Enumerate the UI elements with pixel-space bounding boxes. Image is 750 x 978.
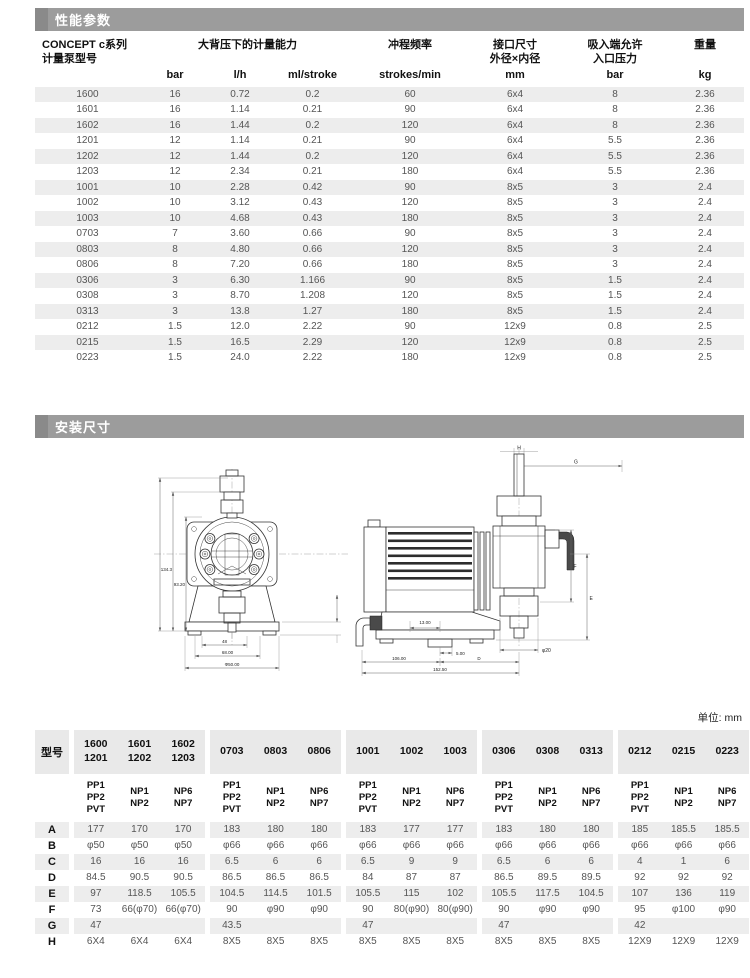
dims-value-cell: φ100 bbox=[662, 902, 706, 918]
perf-table-cell: 1.166 bbox=[270, 273, 355, 289]
perf-table-cell: 0806 bbox=[35, 257, 140, 273]
dims-value-cell: 185.5 bbox=[705, 822, 749, 838]
dims-value-cell: 185.5 bbox=[662, 822, 706, 838]
dims-value-cell: 87 bbox=[433, 870, 477, 886]
perf-table-cell: 0306 bbox=[35, 273, 140, 289]
dims-value-cell: 9 bbox=[390, 854, 434, 870]
dims-value-cell: φ66 bbox=[433, 838, 477, 854]
side-dim-left-len: 106.00 bbox=[392, 656, 406, 661]
perf-table-cell: 180 bbox=[355, 211, 465, 227]
dims-value-cell: φ66 bbox=[210, 838, 254, 854]
perf-table-cell: 2.4 bbox=[665, 195, 745, 211]
dims-material-cell: NP6 NP7 bbox=[161, 786, 205, 810]
dims-value-cell: 47 bbox=[346, 918, 390, 934]
dims-value-cell: φ66 bbox=[482, 838, 526, 854]
dims-value-cell: 9 bbox=[433, 854, 477, 870]
perf-table-cell: 2.34 bbox=[210, 164, 270, 180]
perf-table-cell: 5.5 bbox=[565, 149, 665, 165]
dims-value-cell: 95 bbox=[618, 902, 662, 918]
perf-table-cell: 8.70 bbox=[210, 288, 270, 304]
dims-value-group: 47 bbox=[74, 918, 205, 934]
perf-table-row: 1001102.280.42908x532.4 bbox=[35, 180, 744, 196]
dims-value-cell: 117.5 bbox=[526, 886, 570, 902]
perf-table-cell: 0.72 bbox=[210, 87, 270, 103]
dims-value-cell: 177 bbox=[390, 822, 434, 838]
side-dim-right-len: D bbox=[477, 656, 481, 661]
dims-value-cell: 90 bbox=[346, 902, 390, 918]
perf-table-cell: 3.12 bbox=[210, 195, 270, 211]
perf-table-cell: 12x9 bbox=[465, 319, 565, 335]
dims-value-cell: 104.5 bbox=[210, 886, 254, 902]
perf-table-cell: 2.36 bbox=[665, 133, 745, 149]
dims-model-group: 1600 12011601 12021602 1203 bbox=[74, 730, 205, 774]
perf-table-cell: 6x4 bbox=[465, 164, 565, 180]
perf-table-cell: 1.5 bbox=[565, 304, 665, 320]
perf-unit-cell: kg bbox=[665, 68, 745, 85]
perf-table-cell: 0308 bbox=[35, 288, 140, 304]
perf-table-cell: 1.5 bbox=[140, 350, 210, 366]
dims-value-cell: 12X9 bbox=[662, 934, 706, 950]
side-dim-foot: 5.00 bbox=[456, 651, 465, 656]
perf-table-cell: 1201 bbox=[35, 133, 140, 149]
perf-table-cell: 120 bbox=[355, 242, 465, 258]
perf-table-cell: 1602 bbox=[35, 118, 140, 134]
bleed-elbow-tube bbox=[559, 532, 574, 570]
dims-material-cell: NP1 NP2 bbox=[662, 786, 706, 810]
dims-value-group: 95φ100φ90 bbox=[618, 902, 749, 918]
performance-section-title: 性能参数 bbox=[48, 10, 111, 29]
dims-value-cell: 90 bbox=[210, 902, 254, 918]
perf-table-cell: 2.29 bbox=[270, 335, 355, 351]
dims-value-cell: φ90 bbox=[297, 902, 341, 918]
perf-table-cell: 13.8 bbox=[210, 304, 270, 320]
perf-table-cell: 8x5 bbox=[465, 304, 565, 320]
perf-table-cell: 5.5 bbox=[565, 164, 665, 180]
perf-table-cell: 0223 bbox=[35, 350, 140, 366]
perf-table-header: CONCEPT c系列 计量泵型号 大背压下的计量能力 冲程频率 接口尺寸 外径… bbox=[35, 31, 744, 67]
dims-row-label: F bbox=[35, 902, 69, 918]
perf-table-cell: 4.68 bbox=[210, 211, 270, 227]
dims-row-label: B bbox=[35, 838, 69, 854]
dims-value-cell: φ66 bbox=[705, 838, 749, 854]
perf-table-cell: 120 bbox=[355, 118, 465, 134]
dims-material-cell: NP1 NP2 bbox=[526, 786, 570, 810]
perf-table-cell: 0.8 bbox=[565, 335, 665, 351]
dims-model-cell: 0308 bbox=[526, 745, 570, 759]
perf-table-cell: 1.5 bbox=[140, 319, 210, 335]
dims-value-cell: 6X4 bbox=[74, 934, 118, 950]
perf-table-cell: 0.21 bbox=[270, 164, 355, 180]
perf-table-cell: 10 bbox=[140, 180, 210, 196]
dims-value-cell: φ50 bbox=[74, 838, 118, 854]
perf-unit-cell: strokes/min bbox=[355, 68, 465, 85]
dims-value-cell: 12X9 bbox=[705, 934, 749, 950]
perf-table-cell: 2.5 bbox=[665, 350, 745, 366]
perf-table-cell: 3 bbox=[565, 242, 665, 258]
perf-table-cell: 2.22 bbox=[270, 350, 355, 366]
dims-value-group: 177170170 bbox=[74, 822, 205, 838]
dims-value-group: 84.590.590.5 bbox=[74, 870, 205, 886]
dims-material-group: PP1 PP2 PVTNP1 NP2NP6 NP7 bbox=[210, 774, 341, 822]
front-dim-width-small: 48 bbox=[222, 639, 228, 644]
dims-value-cell: φ50 bbox=[118, 838, 162, 854]
dims-value-group: 90φ90φ90 bbox=[210, 902, 341, 918]
dims-table-row: E97118.5105.5104.5114.5101.5105.51151021… bbox=[35, 886, 750, 902]
dimensions-table: 型号1600 12011601 12021602 120307030803080… bbox=[35, 730, 750, 950]
dims-model-cell: 0215 bbox=[662, 745, 706, 759]
dims-value-group: 8X58X58X5 bbox=[346, 934, 477, 950]
perf-units-row: barl/hml/strokestrokes/minmmbarkg bbox=[35, 68, 744, 85]
perf-table-cell: 1600 bbox=[35, 87, 140, 103]
dims-model-cell: 0806 bbox=[297, 745, 341, 759]
dims-value-cell: φ66 bbox=[254, 838, 298, 854]
perf-table-cell: 2.5 bbox=[665, 335, 745, 351]
perf-table-cell: 8 bbox=[565, 87, 665, 103]
dims-table-row: H6X46X46X48X58X58X58X58X58X58X58X58X512X… bbox=[35, 934, 750, 950]
dims-value-cell: 12X9 bbox=[618, 934, 662, 950]
dims-model-cell: 0313 bbox=[569, 745, 613, 759]
dims-material-group: PP1 PP2 PVTNP1 NP2NP6 NP7 bbox=[74, 774, 205, 822]
dims-value-cell: 6X4 bbox=[118, 934, 162, 950]
dims-model-cell: 1602 1203 bbox=[161, 738, 205, 765]
dims-model-cell: 0212 bbox=[618, 745, 662, 759]
dims-value-cell: φ90 bbox=[569, 902, 613, 918]
perf-table-cell: 1.14 bbox=[210, 133, 270, 149]
perf-table-cell: 6x4 bbox=[465, 118, 565, 134]
perf-table-cell: 0212 bbox=[35, 319, 140, 335]
perf-table-row: 030636.301.166908x51.52.4 bbox=[35, 273, 744, 289]
dims-value-cell: 6.5 bbox=[210, 854, 254, 870]
perf-table-cell: 16 bbox=[140, 118, 210, 134]
perf-table-row: 030838.701.2081208x51.52.4 bbox=[35, 288, 744, 304]
dims-value-group: φ66φ66φ66 bbox=[346, 838, 477, 854]
perf-table-cell: 1601 bbox=[35, 102, 140, 118]
perf-table-row: 1201121.140.21906x45.52.36 bbox=[35, 133, 744, 149]
dims-value-cell: 8X5 bbox=[210, 934, 254, 950]
dims-material-cell: NP1 NP2 bbox=[390, 786, 434, 810]
dims-value-cell: 8X5 bbox=[482, 934, 526, 950]
dims-value-cell: φ50 bbox=[161, 838, 205, 854]
dims-value-group: 107136119 bbox=[618, 886, 749, 902]
dims-value-cell: 170 bbox=[161, 822, 205, 838]
dims-value-group: 12X912X912X9 bbox=[618, 934, 749, 950]
perf-table-cell: 1202 bbox=[35, 149, 140, 165]
perf-table-row: 02151.516.52.2912012x90.82.5 bbox=[35, 335, 744, 351]
perf-unit-cell: ml/stroke bbox=[270, 68, 355, 85]
perf-table-cell: 0215 bbox=[35, 335, 140, 351]
perf-table-cell: 3 bbox=[565, 257, 665, 273]
front-dim-width-full: Φ50.00 bbox=[225, 662, 240, 667]
dims-value-cell: φ66 bbox=[569, 838, 613, 854]
installation-section-bar: 安装尺寸 bbox=[35, 415, 744, 438]
perf-unit-cell: mm bbox=[465, 68, 565, 85]
perf-table-row: 1203122.340.211806x45.52.36 bbox=[35, 164, 744, 180]
dims-value-group: 97118.5105.5 bbox=[74, 886, 205, 902]
dims-model-group: 100110021003 bbox=[346, 730, 477, 774]
perf-table-cell: 3 bbox=[565, 211, 665, 227]
perf-unit-cell bbox=[35, 68, 140, 85]
dims-value-group: 161616 bbox=[74, 854, 205, 870]
perf-table-cell: 2.4 bbox=[665, 242, 745, 258]
perf-table-row: 02121.512.02.229012x90.82.5 bbox=[35, 319, 744, 335]
perf-table-cell: 12x9 bbox=[465, 335, 565, 351]
front-dim-width-mid: 68.00 bbox=[222, 650, 234, 655]
dims-table-row: G4743.5474742 bbox=[35, 918, 750, 934]
dims-value-cell: 87 bbox=[390, 870, 434, 886]
perf-table-cell: 120 bbox=[355, 195, 465, 211]
dims-value-cell: 107 bbox=[618, 886, 662, 902]
dims-value-cell: 119 bbox=[705, 886, 749, 902]
dims-value-cell: 47 bbox=[74, 918, 118, 934]
dims-value-cell: φ66 bbox=[297, 838, 341, 854]
dims-table-row: C1616166.5666.5996.566416 bbox=[35, 854, 750, 870]
dims-model-cell: 0223 bbox=[705, 745, 749, 759]
side-dim-h: H bbox=[517, 445, 521, 451]
perf-table-cell: 0.43 bbox=[270, 211, 355, 227]
perf-table-cell: 10 bbox=[140, 211, 210, 227]
perf-table-cell: 180 bbox=[355, 304, 465, 320]
dims-value-cell: 92 bbox=[705, 870, 749, 886]
dims-value-cell: 136 bbox=[662, 886, 706, 902]
perf-table-cell: 180 bbox=[355, 164, 465, 180]
dims-material-cell: NP6 NP7 bbox=[433, 786, 477, 810]
dims-value-group: φ66φ66φ66 bbox=[482, 838, 613, 854]
dims-value-cell: 86.5 bbox=[210, 870, 254, 886]
side-dim-total-len: 152.50 bbox=[433, 667, 447, 672]
dims-value-cell: 6 bbox=[705, 854, 749, 870]
dims-value-group: 105.5117.5104.5 bbox=[482, 886, 613, 902]
dims-value-cell: 84 bbox=[346, 870, 390, 886]
dims-model-cell: 1003 bbox=[433, 745, 477, 759]
dims-value-cell: 8X5 bbox=[569, 934, 613, 950]
dims-material-group: PP1 PP2 PVTNP1 NP2NP6 NP7 bbox=[346, 774, 477, 822]
dims-value-cell: 66(φ70) bbox=[118, 902, 162, 918]
perf-table-cell: 16 bbox=[140, 87, 210, 103]
dims-value-cell: 6.5 bbox=[346, 854, 390, 870]
perf-header-stroke-freq: 冲程频率 bbox=[355, 38, 465, 52]
perf-table-cell: 180 bbox=[355, 350, 465, 366]
dims-row-label: D bbox=[35, 870, 69, 886]
perf-table-cell: 7 bbox=[140, 226, 210, 242]
dims-value-cell: 66(φ70) bbox=[161, 902, 205, 918]
perf-table-cell: 2.4 bbox=[665, 257, 745, 273]
section-bar-chip bbox=[35, 8, 48, 31]
dims-value-cell: 97 bbox=[74, 886, 118, 902]
front-dim-height-inner: 93.20 bbox=[174, 582, 186, 587]
dims-row-label: C bbox=[35, 854, 69, 870]
dims-value-group: 9080(φ90)80(φ90) bbox=[346, 902, 477, 918]
perf-table-body: 1600160.720.2606x482.361601161.140.21906… bbox=[35, 87, 744, 366]
dims-value-cell: 6X4 bbox=[161, 934, 205, 950]
dims-value-cell: 118.5 bbox=[118, 886, 162, 902]
dims-value-cell: 4 bbox=[618, 854, 662, 870]
dims-value-cell: 180 bbox=[569, 822, 613, 838]
dims-value-group: 848787 bbox=[346, 870, 477, 886]
perf-table-cell: 1203 bbox=[35, 164, 140, 180]
perf-table-cell: 2.4 bbox=[665, 180, 745, 196]
perf-table-cell: 1.27 bbox=[270, 304, 355, 320]
perf-table-cell: 0.2 bbox=[270, 87, 355, 103]
dims-corner-empty bbox=[35, 774, 69, 822]
dims-material-cell: PP1 PP2 PVT bbox=[482, 780, 526, 816]
perf-table-cell: 2.4 bbox=[665, 211, 745, 227]
perf-table-cell: 0.42 bbox=[270, 180, 355, 196]
dims-value-group: 6X46X46X4 bbox=[74, 934, 205, 950]
dims-value-cell: 185 bbox=[618, 822, 662, 838]
dims-value-cell: 180 bbox=[526, 822, 570, 838]
perf-table-cell: 16 bbox=[140, 102, 210, 118]
dims-material-cell: PP1 PP2 PVT bbox=[210, 780, 254, 816]
perf-table-cell: 16.5 bbox=[210, 335, 270, 351]
dims-value-group: φ50φ50φ50 bbox=[74, 838, 205, 854]
side-dim-offset: 13.00 bbox=[419, 620, 431, 625]
dims-value-group: 6.599 bbox=[346, 854, 477, 870]
perf-table-cell: 3 bbox=[565, 195, 665, 211]
perf-table-cell: 6x4 bbox=[465, 87, 565, 103]
dims-model-cell: 0703 bbox=[210, 745, 254, 759]
perf-table-cell: 2.28 bbox=[210, 180, 270, 196]
perf-table-cell: 1.5 bbox=[140, 335, 210, 351]
dims-value-group: 185185.5185.5 bbox=[618, 822, 749, 838]
dims-value-group: 86.589.589.5 bbox=[482, 870, 613, 886]
performance-section-bar: 性能参数 bbox=[35, 8, 744, 31]
dims-value-cell: 90 bbox=[482, 902, 526, 918]
perf-unit-cell: bar bbox=[565, 68, 665, 85]
dims-value-group: 90φ90φ90 bbox=[482, 902, 613, 918]
perf-table-cell: 120 bbox=[355, 335, 465, 351]
dims-model-cell: 0306 bbox=[482, 745, 526, 759]
perf-table-row: 1202121.440.21206x45.52.36 bbox=[35, 149, 744, 165]
dims-value-group: 105.5115102 bbox=[346, 886, 477, 902]
dims-value-cell: 42 bbox=[618, 918, 662, 934]
perf-table-cell: 1.5 bbox=[565, 273, 665, 289]
perf-table-cell: 12.0 bbox=[210, 319, 270, 335]
installation-section-title: 安装尺寸 bbox=[48, 417, 111, 436]
perf-table-cell: 2.4 bbox=[665, 226, 745, 242]
perf-table-cell: 1.44 bbox=[210, 118, 270, 134]
dims-value-cell: 6 bbox=[526, 854, 570, 870]
perf-table-cell: 8 bbox=[565, 102, 665, 118]
dims-row-label: A bbox=[35, 822, 69, 838]
dims-value-cell: 73 bbox=[74, 902, 118, 918]
perf-table-cell: 3 bbox=[140, 304, 210, 320]
perf-table-cell: 8x5 bbox=[465, 288, 565, 304]
perf-table-cell: 8x5 bbox=[465, 180, 565, 196]
dims-material-cell: NP1 NP2 bbox=[254, 786, 298, 810]
dims-table-row: D84.590.590.586.586.586.584878786.589.58… bbox=[35, 870, 750, 886]
perf-table-cell: 10 bbox=[140, 195, 210, 211]
dims-value-cell: φ66 bbox=[346, 838, 390, 854]
perf-header-weight: 重量 bbox=[665, 38, 745, 52]
dims-value-group: φ66φ66φ66 bbox=[618, 838, 749, 854]
dims-header-materials: PP1 PP2 PVTNP1 NP2NP6 NP7PP1 PP2 PVTNP1 … bbox=[35, 774, 750, 822]
perf-table-cell: 1.44 bbox=[210, 149, 270, 165]
perf-table-cell: 8x5 bbox=[465, 242, 565, 258]
perf-table-cell: 2.4 bbox=[665, 304, 745, 320]
perf-table-cell: 6.30 bbox=[210, 273, 270, 289]
dims-value-cell: 6 bbox=[569, 854, 613, 870]
dims-value-group: 416 bbox=[618, 854, 749, 870]
dims-value-group: 183180180 bbox=[482, 822, 613, 838]
perf-table-cell: 0.8 bbox=[565, 319, 665, 335]
dims-value-cell: 86.5 bbox=[482, 870, 526, 886]
dims-value-cell: 16 bbox=[118, 854, 162, 870]
side-dim-g: G bbox=[574, 459, 578, 465]
dims-value-cell: 170 bbox=[118, 822, 162, 838]
dims-value-group: 7366(φ70)66(φ70) bbox=[74, 902, 205, 918]
dims-model-group: 030603080313 bbox=[482, 730, 613, 774]
dims-row-label: G bbox=[35, 918, 69, 934]
dims-value-cell: 183 bbox=[482, 822, 526, 838]
perf-table-row: 1602161.440.21206x482.36 bbox=[35, 118, 744, 134]
perf-table-cell: 8 bbox=[140, 257, 210, 273]
perf-table-cell: 7.20 bbox=[210, 257, 270, 273]
dims-value-cell: 8X5 bbox=[254, 934, 298, 950]
dims-value-cell: 90.5 bbox=[161, 870, 205, 886]
dims-model-cell: 1002 bbox=[390, 745, 434, 759]
perf-table-cell: 2.22 bbox=[270, 319, 355, 335]
dims-value-cell: 47 bbox=[482, 918, 526, 934]
front-dim-height-outer: 134.3 bbox=[161, 567, 173, 572]
perf-table-row: 1601161.140.21906x482.36 bbox=[35, 102, 744, 118]
dims-material-cell: PP1 PP2 PVT bbox=[618, 780, 662, 816]
perf-table-cell: 8 bbox=[140, 242, 210, 258]
dims-row-label: H bbox=[35, 934, 69, 950]
dims-value-cell: φ66 bbox=[390, 838, 434, 854]
perf-table-cell: 2.4 bbox=[665, 273, 745, 289]
dims-value-cell: φ66 bbox=[526, 838, 570, 854]
perf-table-cell: 2.36 bbox=[665, 149, 745, 165]
perf-table-cell: 8x5 bbox=[465, 273, 565, 289]
perf-table-cell: 1.14 bbox=[210, 102, 270, 118]
dims-value-group: 47 bbox=[346, 918, 477, 934]
dims-material-cell: NP1 NP2 bbox=[118, 786, 162, 810]
perf-table-cell: 2.4 bbox=[665, 288, 745, 304]
dims-value-cell: 6 bbox=[297, 854, 341, 870]
dims-value-cell: 105.5 bbox=[161, 886, 205, 902]
dims-value-cell: 89.5 bbox=[526, 870, 570, 886]
perf-table-cell: 90 bbox=[355, 102, 465, 118]
dims-value-cell: 183 bbox=[210, 822, 254, 838]
dims-value-cell: 177 bbox=[74, 822, 118, 838]
perf-table-cell: 1.5 bbox=[565, 288, 665, 304]
dims-value-cell: 8X5 bbox=[526, 934, 570, 950]
dims-table-row: F7366(φ70)66(φ70)90φ90φ909080(φ90)80(φ90… bbox=[35, 902, 750, 918]
dims-value-cell: 92 bbox=[662, 870, 706, 886]
perf-table-cell: 4.80 bbox=[210, 242, 270, 258]
dims-value-group: 47 bbox=[482, 918, 613, 934]
perf-table-cell: 3 bbox=[140, 273, 210, 289]
dims-material-group: PP1 PP2 PVTNP1 NP2NP6 NP7 bbox=[618, 774, 749, 822]
dims-model-cell: 1001 bbox=[346, 745, 390, 759]
perf-table-cell: 6x4 bbox=[465, 149, 565, 165]
dims-value-cell: 6.5 bbox=[482, 854, 526, 870]
perf-table-row: 02231.524.02.2218012x90.82.5 bbox=[35, 350, 744, 366]
perf-table-cell: 6x4 bbox=[465, 102, 565, 118]
dims-table-row: Bφ50φ50φ50φ66φ66φ66φ66φ66φ66φ66φ66φ66φ66… bbox=[35, 838, 750, 854]
dims-value-cell: φ90 bbox=[254, 902, 298, 918]
dims-model-cell: 1600 1201 bbox=[74, 738, 118, 765]
perf-table-cell: 1001 bbox=[35, 180, 140, 196]
side-dim-e: E bbox=[590, 596, 594, 602]
perf-table-cell: 90 bbox=[355, 180, 465, 196]
perf-table-row: 0313313.81.271808x51.52.4 bbox=[35, 304, 744, 320]
perf-table-cell: 8x5 bbox=[465, 211, 565, 227]
perf-table-cell: 90 bbox=[355, 133, 465, 149]
dims-value-cell: 114.5 bbox=[254, 886, 298, 902]
section-bar-chip bbox=[35, 415, 48, 438]
dims-model-group: 070308030806 bbox=[210, 730, 341, 774]
